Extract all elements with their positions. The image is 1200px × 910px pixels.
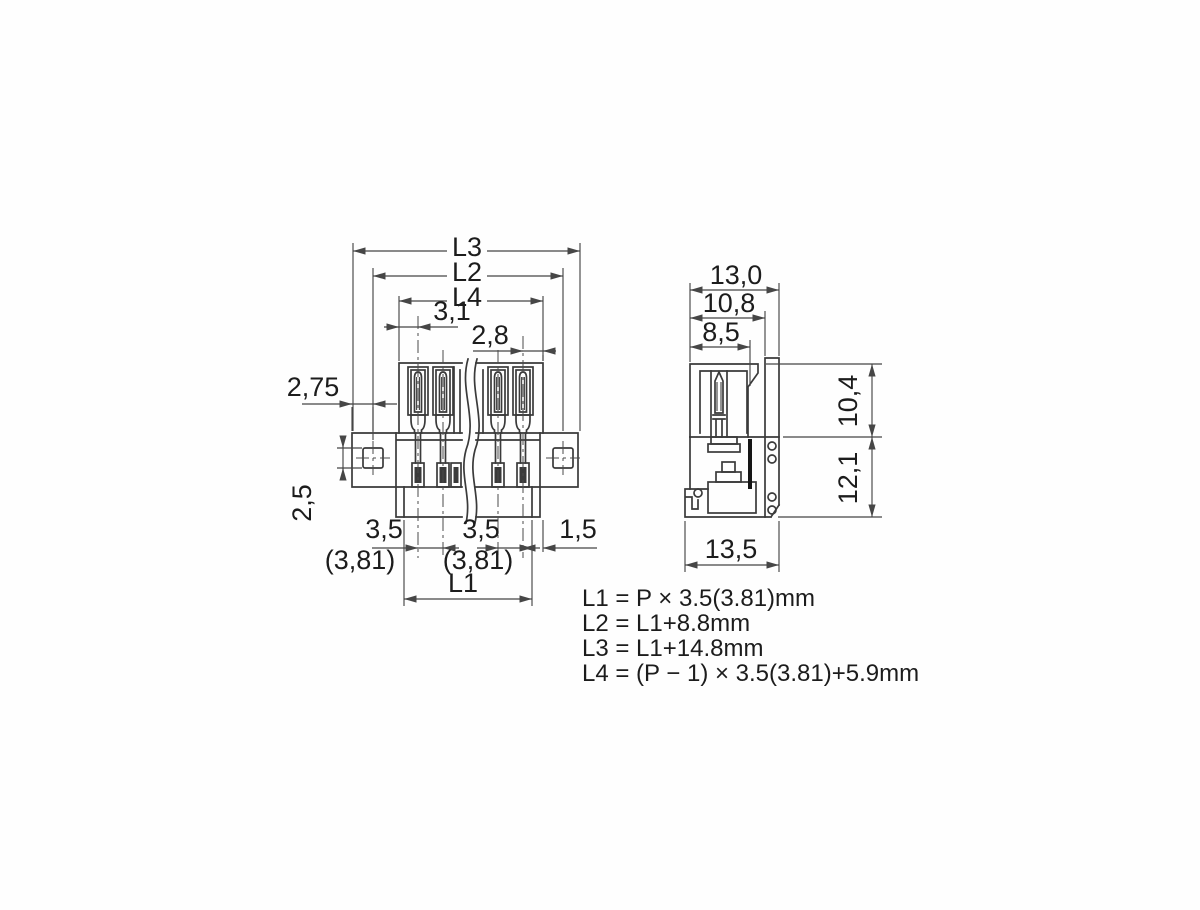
dim-label-2-75: 2,75 bbox=[287, 372, 340, 402]
dim-2-75: 2,75 bbox=[287, 372, 397, 440]
technical-drawing-page: L3 L2 L4 3,1 2,8 bbox=[0, 0, 1200, 910]
side-view: 13,0 10,8 8,5 10,4 12,1 13,5 bbox=[685, 260, 882, 572]
dim-label-3-5-right: 3,5 bbox=[462, 514, 500, 544]
dim-label-13-0: 13,0 bbox=[710, 260, 763, 290]
connector-dimension-drawing: L3 L2 L4 3,1 2,8 bbox=[0, 0, 1200, 910]
dim-label-l1: L1 bbox=[448, 568, 478, 598]
dim-label-3-5-left: 3,5 bbox=[365, 514, 403, 544]
dim-10-4: 10,4 bbox=[766, 364, 882, 437]
front-view: L3 L2 L4 3,1 2,8 bbox=[287, 232, 597, 606]
front-view-body-outline bbox=[352, 363, 578, 517]
dim-label-3-1: 3,1 bbox=[433, 296, 471, 326]
dim-2-5: 2,5 bbox=[287, 436, 362, 522]
dim-13-5: 13,5 bbox=[685, 521, 779, 572]
dim-label-8-5: 8,5 bbox=[702, 317, 740, 347]
formula-l4: L4 = (P − 1) × 3.5(3.81)+5.9mm bbox=[582, 660, 919, 687]
dim-label-12-1: 12,1 bbox=[833, 452, 863, 505]
dim-label-13-5: 13,5 bbox=[705, 534, 758, 564]
dim-pitch-left: 3,5 (3,81) bbox=[325, 514, 459, 575]
dim-label-10-4: 10,4 bbox=[833, 375, 863, 428]
formula-l1: L1 = P × 3.5(3.81)mm bbox=[582, 585, 815, 612]
dim-12-1: 12,1 bbox=[778, 437, 882, 517]
dim-label-10-8: 10,8 bbox=[703, 288, 756, 318]
dim-label-1-5: 1,5 bbox=[559, 514, 597, 544]
side-view-body-outline bbox=[685, 358, 779, 517]
dim-pitch-right: 3,5 (3,81) bbox=[443, 514, 540, 575]
dim-label-3-81-left: (3,81) bbox=[325, 545, 396, 575]
formula-block: L1 = P × 3.5(3.81)mm L2 = L1+8.8mm L3 = … bbox=[582, 585, 919, 687]
dim-label-2-8: 2,8 bbox=[471, 320, 509, 350]
dim-label-2-5: 2,5 bbox=[287, 484, 317, 522]
formula-l2: L2 = L1+8.8mm bbox=[582, 610, 750, 637]
formula-l3: L3 = L1+14.8mm bbox=[582, 635, 763, 662]
break-lines bbox=[464, 359, 479, 523]
